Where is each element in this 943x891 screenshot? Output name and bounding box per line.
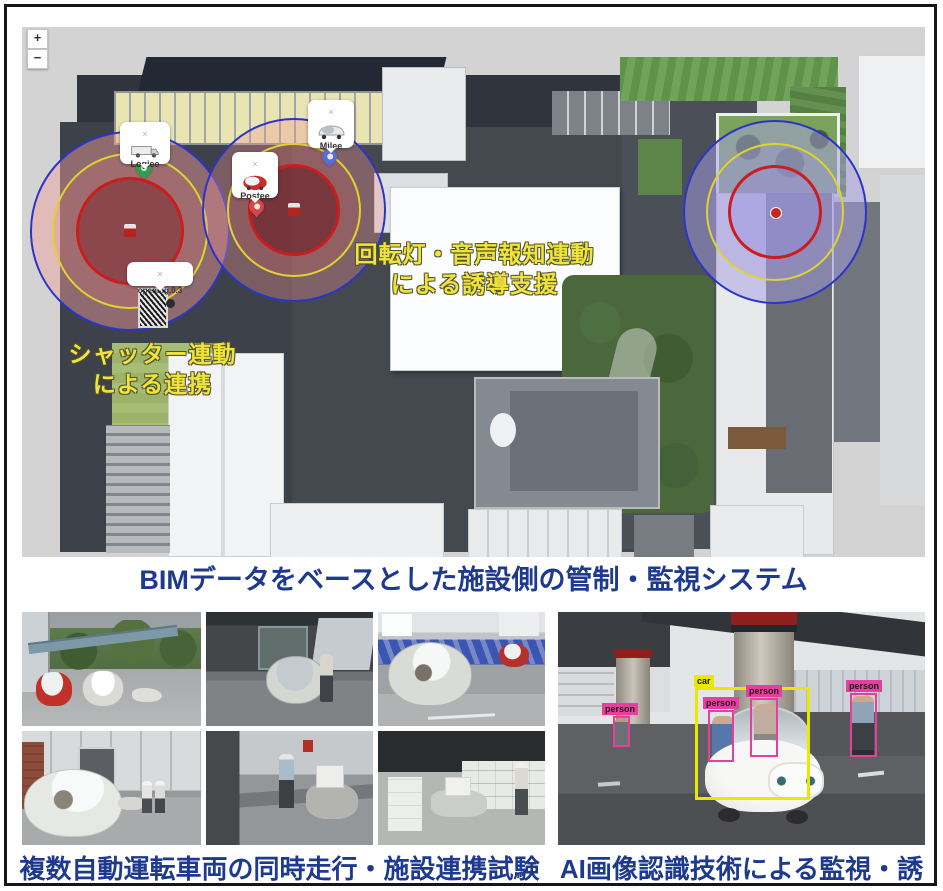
photo-shaded-pod-boarding	[206, 612, 373, 726]
marker-label-opening: opening,0.3	[127, 282, 193, 300]
white-pod-vehicle	[24, 769, 122, 837]
pillar-red-beacon	[731, 612, 797, 625]
person	[320, 654, 333, 702]
pillar-red-beacon	[614, 649, 652, 658]
road-marking	[428, 713, 495, 719]
building	[382, 614, 412, 636]
annotation-beacon-line1: 回転灯・音声報知連動	[352, 239, 597, 269]
photo-alley-robot	[206, 731, 373, 845]
detection-box-person	[850, 693, 877, 757]
red-pod-icon	[240, 173, 270, 191]
wheel	[718, 808, 740, 822]
annotation-beacon-line2: による誘導支援	[352, 269, 597, 299]
red-pod-vehicle	[499, 644, 529, 667]
detection-label-person: person	[746, 685, 782, 697]
bim-caption: BIMデータをベースとした施設側の管制・監視システム	[22, 558, 925, 597]
marker-card-milee[interactable]: × Milee	[308, 100, 354, 148]
building-south-4	[634, 515, 694, 557]
cargo-box	[445, 777, 471, 796]
ai-recognition-photo: car person person person person	[558, 612, 925, 845]
red-pod-vehicle	[36, 672, 72, 706]
truck-icon	[130, 143, 160, 159]
marker-label-postee: Postee	[232, 191, 278, 202]
delivery-robot	[118, 797, 144, 810]
annotation-shutter-line1: シャッター連動	[60, 339, 245, 369]
photo-loading-dock	[22, 731, 201, 845]
detection-label-person: person	[703, 697, 739, 709]
photo-grid	[22, 612, 545, 845]
person	[279, 754, 294, 808]
photo-street-blue-barrier	[378, 612, 545, 726]
white-pod-icon	[315, 121, 347, 141]
building-center-gray-core	[510, 391, 638, 491]
building-south-3	[710, 505, 804, 557]
delivery-robot	[132, 688, 162, 702]
robot-position-left	[124, 224, 136, 237]
close-icon[interactable]: ×	[328, 107, 333, 117]
box-stack	[388, 777, 422, 831]
photo-street-three-vehicles	[22, 612, 201, 726]
shutter-knob-icon	[166, 299, 175, 308]
building-east-edge	[880, 175, 925, 505]
building-round-detail	[490, 413, 516, 447]
building	[499, 612, 539, 636]
road-marking	[858, 771, 884, 778]
close-icon[interactable]: ×	[157, 269, 162, 279]
marker-card-opening[interactable]: × opening,0.3	[127, 262, 193, 286]
white-pod-vehicle	[266, 656, 326, 704]
annotation-shutter: シャッター連動 による連携	[60, 339, 245, 399]
detection-box-person	[613, 716, 630, 747]
bim-map-viewport[interactable]: 回転灯・音声報知連動 による誘導支援 シャッター連動 による連携 × Logie…	[22, 27, 925, 557]
building-south-2	[468, 509, 622, 557]
annotation-shutter-line2: による連携	[60, 369, 245, 399]
photo-warehouse-boxes	[378, 731, 545, 845]
close-icon[interactable]: ×	[142, 129, 147, 139]
close-icon[interactable]: ×	[252, 159, 257, 169]
building-west-industrial	[106, 425, 170, 553]
building-south-1	[270, 503, 444, 557]
road-marking	[598, 781, 620, 787]
detection-box-person	[708, 710, 734, 762]
green-patch	[638, 139, 682, 195]
zoom-in-button[interactable]: +	[27, 29, 48, 49]
marker-label-milee: Milee	[308, 141, 354, 152]
worker	[142, 781, 152, 813]
ai-caption: AI画像認識技術による監視・誘導	[552, 849, 931, 891]
red-sign	[303, 740, 313, 752]
building-white-north-1	[382, 67, 466, 161]
detection-label-person: person	[602, 703, 638, 715]
marker-card-logiee[interactable]: × Logiee	[120, 122, 170, 164]
building-northeast-corner	[858, 55, 925, 169]
detection-label-person: person	[846, 680, 882, 692]
grid-caption: 複数自動運転車両の同時走行・施設連携試験	[14, 849, 545, 886]
marker-label-logiee: Logiee	[120, 159, 170, 170]
delivery-robot	[306, 783, 358, 819]
white-pod-vehicle	[388, 642, 472, 706]
detection-label-car: car	[694, 675, 714, 687]
robot-position-center	[288, 203, 300, 216]
robot-position-right	[770, 207, 782, 219]
person	[515, 763, 528, 815]
white-pod-vehicle	[82, 670, 124, 707]
marker-card-postee[interactable]: × Postee	[232, 152, 278, 198]
wheel	[786, 810, 808, 824]
figure-page: 回転灯・音声報知連動 による誘導支援 シャッター連動 による連携 × Logie…	[0, 0, 943, 891]
detection-box-person	[750, 698, 778, 757]
worker	[155, 781, 165, 813]
zoom-out-button[interactable]: −	[27, 49, 48, 69]
pillar-band	[731, 625, 797, 632]
wood-deck	[728, 427, 786, 449]
cargo-box	[316, 765, 344, 788]
annotation-beacon: 回転灯・音声報知連動 による誘導支援	[352, 239, 597, 299]
